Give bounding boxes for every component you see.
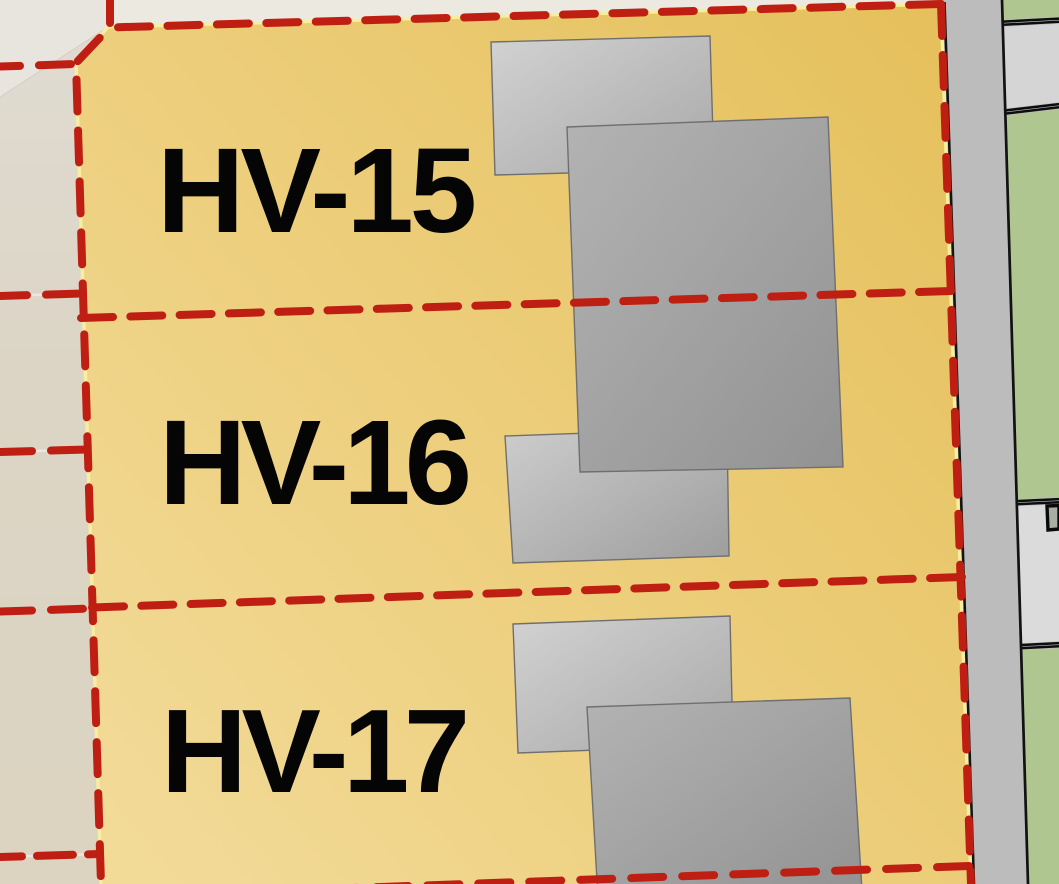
svg-text:HV-15: HV-15 xyxy=(157,122,477,258)
svg-text:HV-17: HV-17 xyxy=(161,685,470,818)
svg-text:HV-16: HV-16 xyxy=(159,394,472,530)
